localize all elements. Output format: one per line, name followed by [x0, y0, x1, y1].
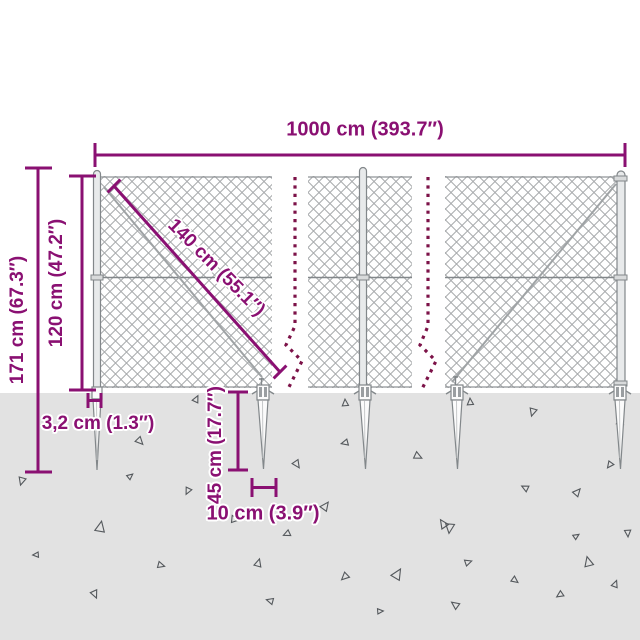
fence-dimension-diagram: 1000 cm (393.7″) 171 cm (67.3″) 120 cm (…	[0, 0, 640, 640]
clamp-middle-mid	[357, 275, 369, 280]
label-spike-width: 10 cm (3.9″)	[207, 503, 320, 526]
diagram-canvas	[0, 0, 640, 640]
post-right	[617, 171, 625, 393]
label-total-height: 171 cm (67.3″)	[7, 256, 29, 384]
clamp-right-mid	[614, 275, 627, 280]
label-spike-depth: 45 cm (17.7″)	[205, 386, 227, 504]
dimline-total-width	[95, 143, 625, 167]
post-left	[94, 171, 101, 394]
label-fence-height: 120 cm (47.2″)	[46, 219, 68, 347]
label-post-width: 3,2 cm (1.3″)	[42, 413, 155, 435]
break-line-left	[286, 177, 302, 389]
break-line-right	[420, 177, 436, 389]
clamp-left-mid	[91, 275, 103, 280]
dimline-fence-height	[69, 176, 96, 390]
label-total-width: 1000 cm (393.7″)	[286, 119, 443, 142]
clamp-right-top	[614, 176, 627, 181]
